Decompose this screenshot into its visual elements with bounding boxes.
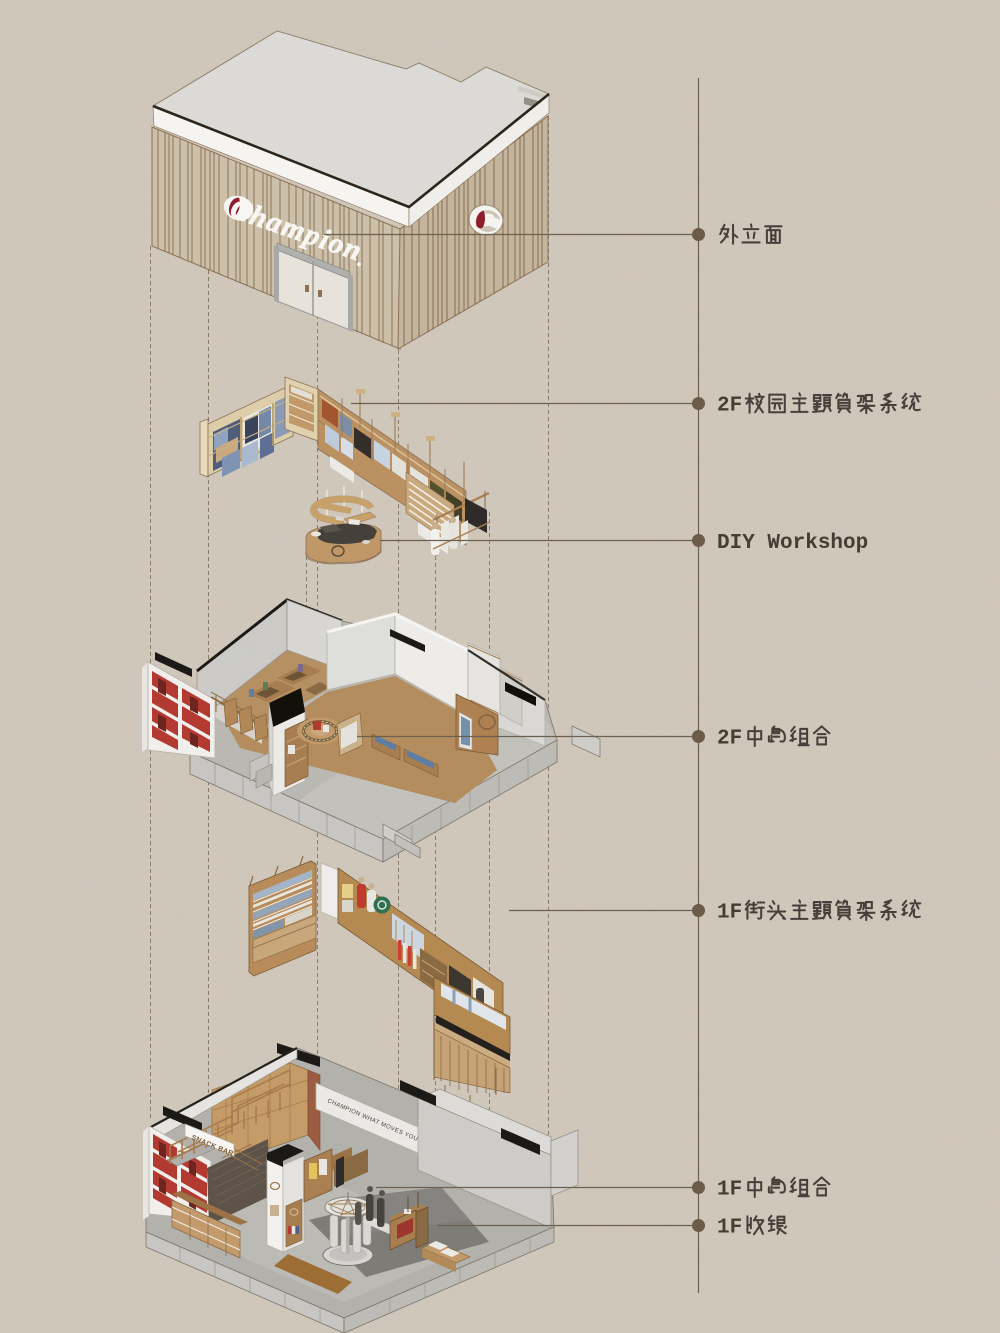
svg-text:1F: 1F [717,1179,742,1202]
svg-text:DIY Workshop: DIY Workshop [717,532,868,555]
svg-text:1F: 1F [717,902,742,925]
svg-text:2F: 2F [717,728,742,751]
svg-text:2F: 2F [717,395,742,418]
svg-text:1F: 1F [717,1217,742,1240]
